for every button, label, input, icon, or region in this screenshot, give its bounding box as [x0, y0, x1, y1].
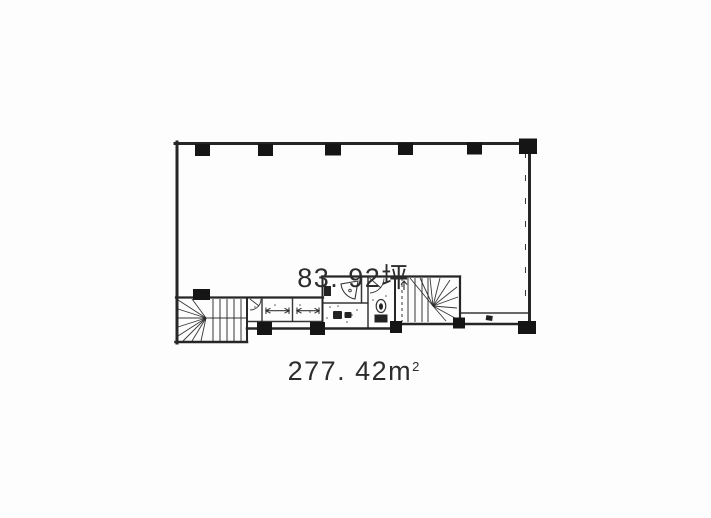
area-sqm-unit: m: [388, 356, 412, 386]
area-sqm-exponent: 2: [412, 359, 419, 374]
column-icon: [325, 144, 341, 156]
area-tsubo-text: 83. 92坪: [177, 263, 530, 294]
column-icon: [258, 144, 273, 156]
column-icon: [398, 143, 413, 155]
column-icon: [519, 139, 537, 155]
column-icon: [467, 143, 482, 155]
columns-top-row: [195, 139, 537, 157]
scanned-floor-plan-page: 83. 92坪 277. 42m2: [0, 0, 711, 518]
area-label: 83. 92坪 277. 42m2: [177, 201, 530, 449]
area-sqm-text: 277. 42m2: [177, 356, 530, 387]
column-icon: [195, 144, 210, 156]
area-sqm-value: 277. 42: [288, 356, 389, 386]
